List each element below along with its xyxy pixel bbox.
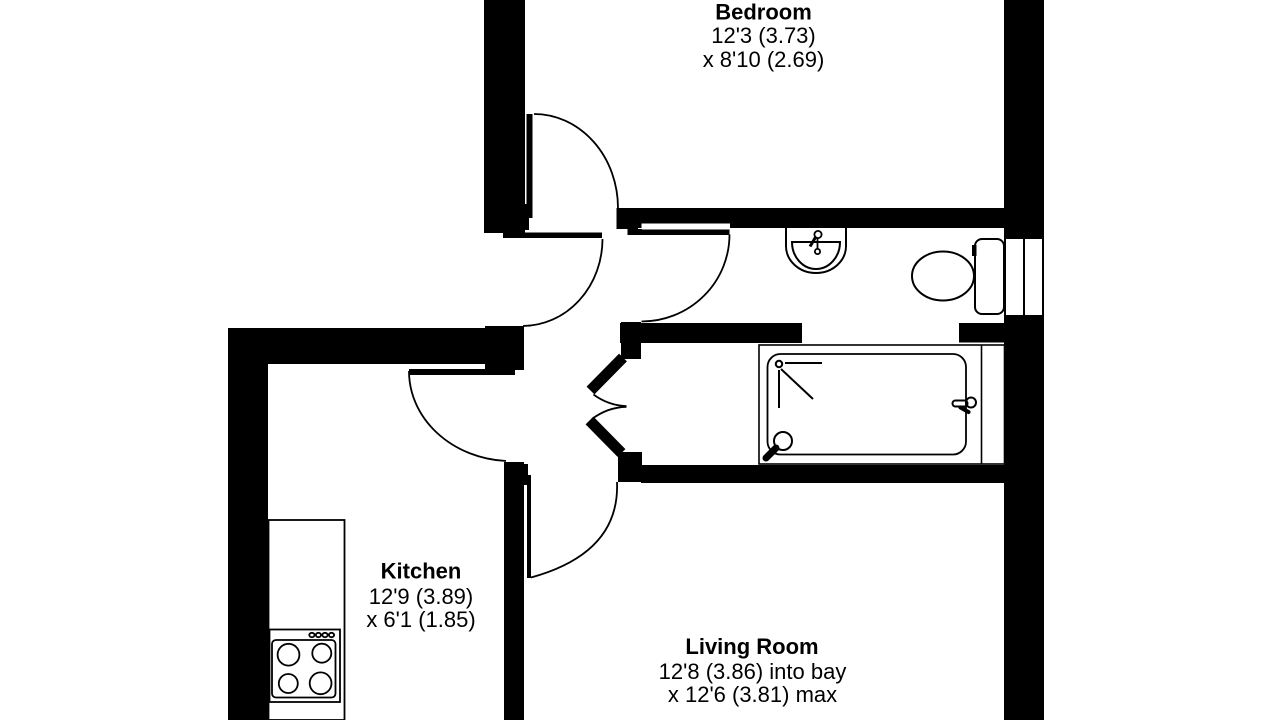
svg-text:x 8'10 (2.69): x 8'10 (2.69)	[703, 47, 825, 72]
svg-text:x 12'6 (3.81) max: x 12'6 (3.81) max	[668, 682, 837, 707]
svg-text:Kitchen: Kitchen	[381, 559, 462, 584]
svg-text:x 6'1 (1.85): x 6'1 (1.85)	[366, 607, 475, 632]
svg-text:Living Room: Living Room	[685, 634, 818, 659]
svg-text:12'9 (3.89): 12'9 (3.89)	[369, 584, 474, 609]
svg-text:12'8 (3.86) into bay: 12'8 (3.86) into bay	[659, 659, 847, 684]
svg-text:12'3 (3.73): 12'3 (3.73)	[711, 23, 816, 48]
svg-text:Bedroom: Bedroom	[715, 0, 812, 25]
